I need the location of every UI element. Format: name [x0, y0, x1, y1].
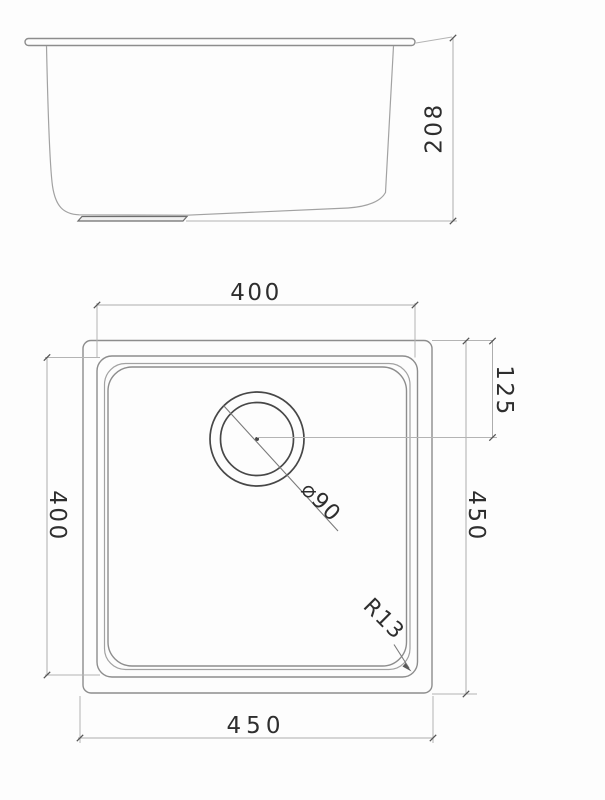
side-view-basin-outline: [47, 46, 394, 215]
plan-bowl-inner-edge-outer: [105, 364, 411, 670]
inner-depth-dimension: 400: [44, 354, 100, 678]
outer-height-dimension: 450: [432, 338, 489, 697]
corner-radius-leader: [394, 645, 409, 669]
inner-width-label: 400: [230, 280, 281, 306]
outer-width-label: 450: [227, 713, 286, 739]
inner-depth-label: 400: [44, 490, 70, 541]
inner-width-dimension: 400: [94, 280, 418, 358]
plan-bowl-inner-edge: [108, 367, 407, 666]
outer-height-label: 450: [463, 490, 489, 541]
plan-bowl-rim: [97, 356, 418, 677]
outer-width-dimension: 450: [77, 696, 436, 743]
depth-ext-line-top: [416, 37, 452, 43]
depth-dimension: 208: [186, 35, 457, 224]
corner-radius-callout: R13: [358, 594, 412, 672]
side-view-drain-foot: [78, 217, 187, 222]
plan-outer-edge: [83, 341, 432, 694]
drain-offset-label: 125: [491, 365, 517, 416]
corner-radius-label: R13: [358, 594, 409, 645]
drain-offset-dimension: 125: [257, 338, 517, 441]
sink-drawing-canvas: 208 ⌀90 400: [0, 0, 605, 800]
drain-diameter-label: ⌀90: [296, 477, 346, 527]
drain: ⌀90: [210, 392, 346, 531]
side-view: 208: [25, 35, 457, 224]
sink-technical-drawing: 208 ⌀90 400: [0, 0, 605, 800]
side-view-rim: [25, 39, 415, 46]
plan-view: ⌀90 400 400: [44, 280, 517, 743]
depth-dimension-label: 208: [422, 102, 448, 153]
